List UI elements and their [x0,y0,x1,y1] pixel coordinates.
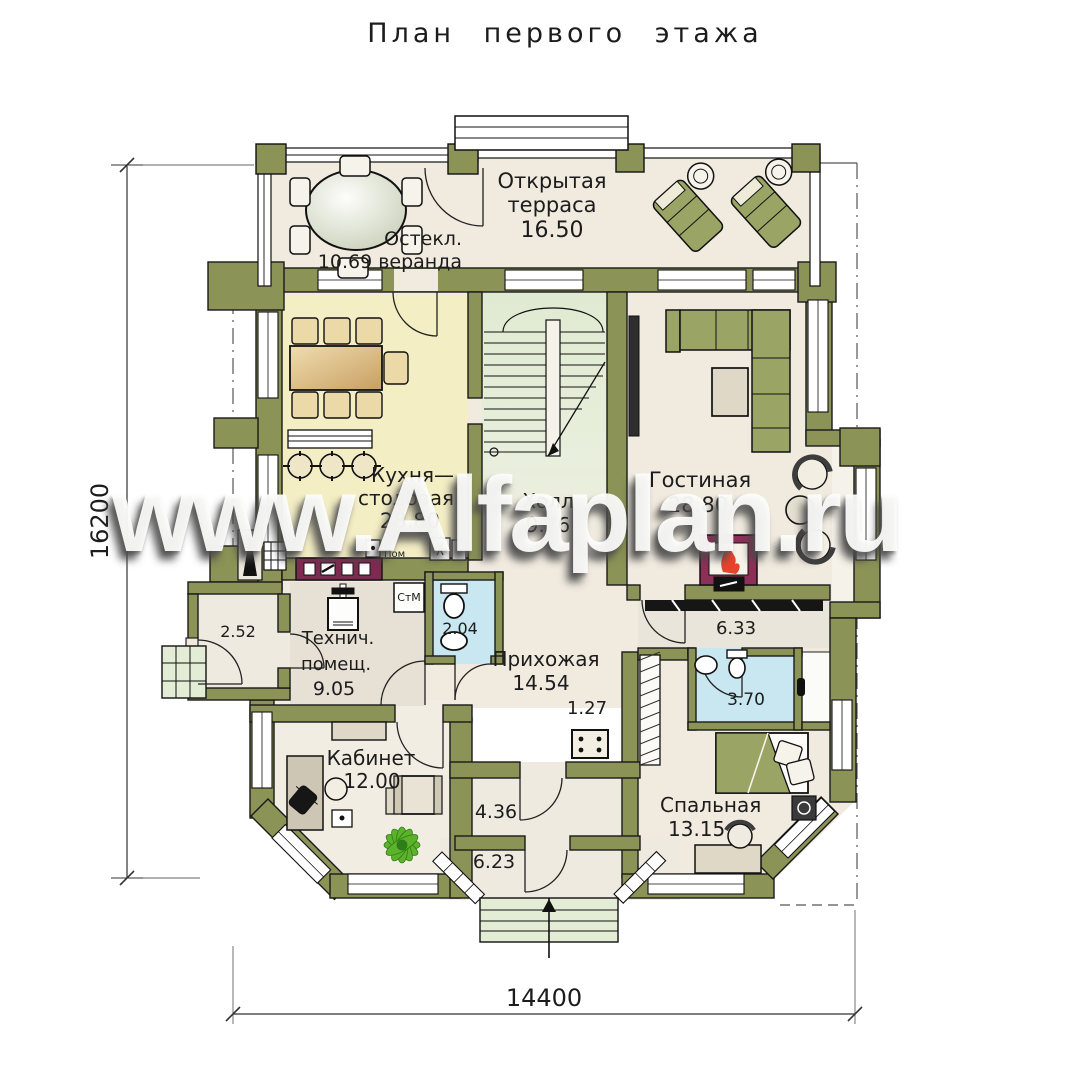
label-hall-area: 9.76 [526,513,571,537]
label-hall: Холл [522,489,574,513]
dimension-bottom-value: 14400 [506,984,582,1012]
label-tech-2: помещ. [301,654,371,675]
label-kitchen-area: 28.80 [380,509,440,533]
label-terrace-area: 16.50 [521,218,584,243]
pantry-label: Пом [384,549,405,560]
label-terrace-2: терраса [507,193,596,217]
label-tech-area: 9.05 [313,678,355,700]
corridor-radiator [645,600,823,611]
label-bath1-area: 2.04 [442,619,478,638]
label-entry: Прихожая [492,647,599,671]
label-bedroom-area: 13.15 [668,817,725,841]
washer-label: СтМ [397,591,421,604]
label-kitchen: Кухня— [371,463,454,487]
label-veranda-2: 10.69 веранда [318,251,462,273]
label-corridor-area: 6.33 [716,618,756,639]
label-living: Гостиная [649,468,751,492]
label-entry-area: 14.54 [512,671,569,695]
label-porch-area: 6.23 [473,851,515,873]
label-kitchen-2: столовая [358,486,454,510]
label-tambour-area: 4.36 [475,801,517,823]
label-terrace: Открытая [497,169,606,193]
label-closet-area: 1.27 [567,698,607,719]
label-bedroom: Спальная [660,793,761,817]
wardrobe [640,652,660,765]
label-bath2-area: 3.70 [727,690,765,710]
label-vestibule-area: 2.52 [220,622,256,641]
hall-furniture [572,730,608,758]
label-office: Кабинет [327,746,416,770]
floor-plan-canvas: План первого этажа 16200 14400 [0,0,1080,1080]
label-office-area: 12.00 [343,769,400,793]
label-living-area: 28.80 [668,493,728,517]
label-veranda: Остекл. [384,228,462,250]
dimension-left-value: 16200 [86,483,114,559]
page-title: План первого этажа [367,18,762,49]
floor-plan-page: План первого этажа 16200 14400 [0,0,1080,1080]
label-tech: Технич. [301,628,375,649]
